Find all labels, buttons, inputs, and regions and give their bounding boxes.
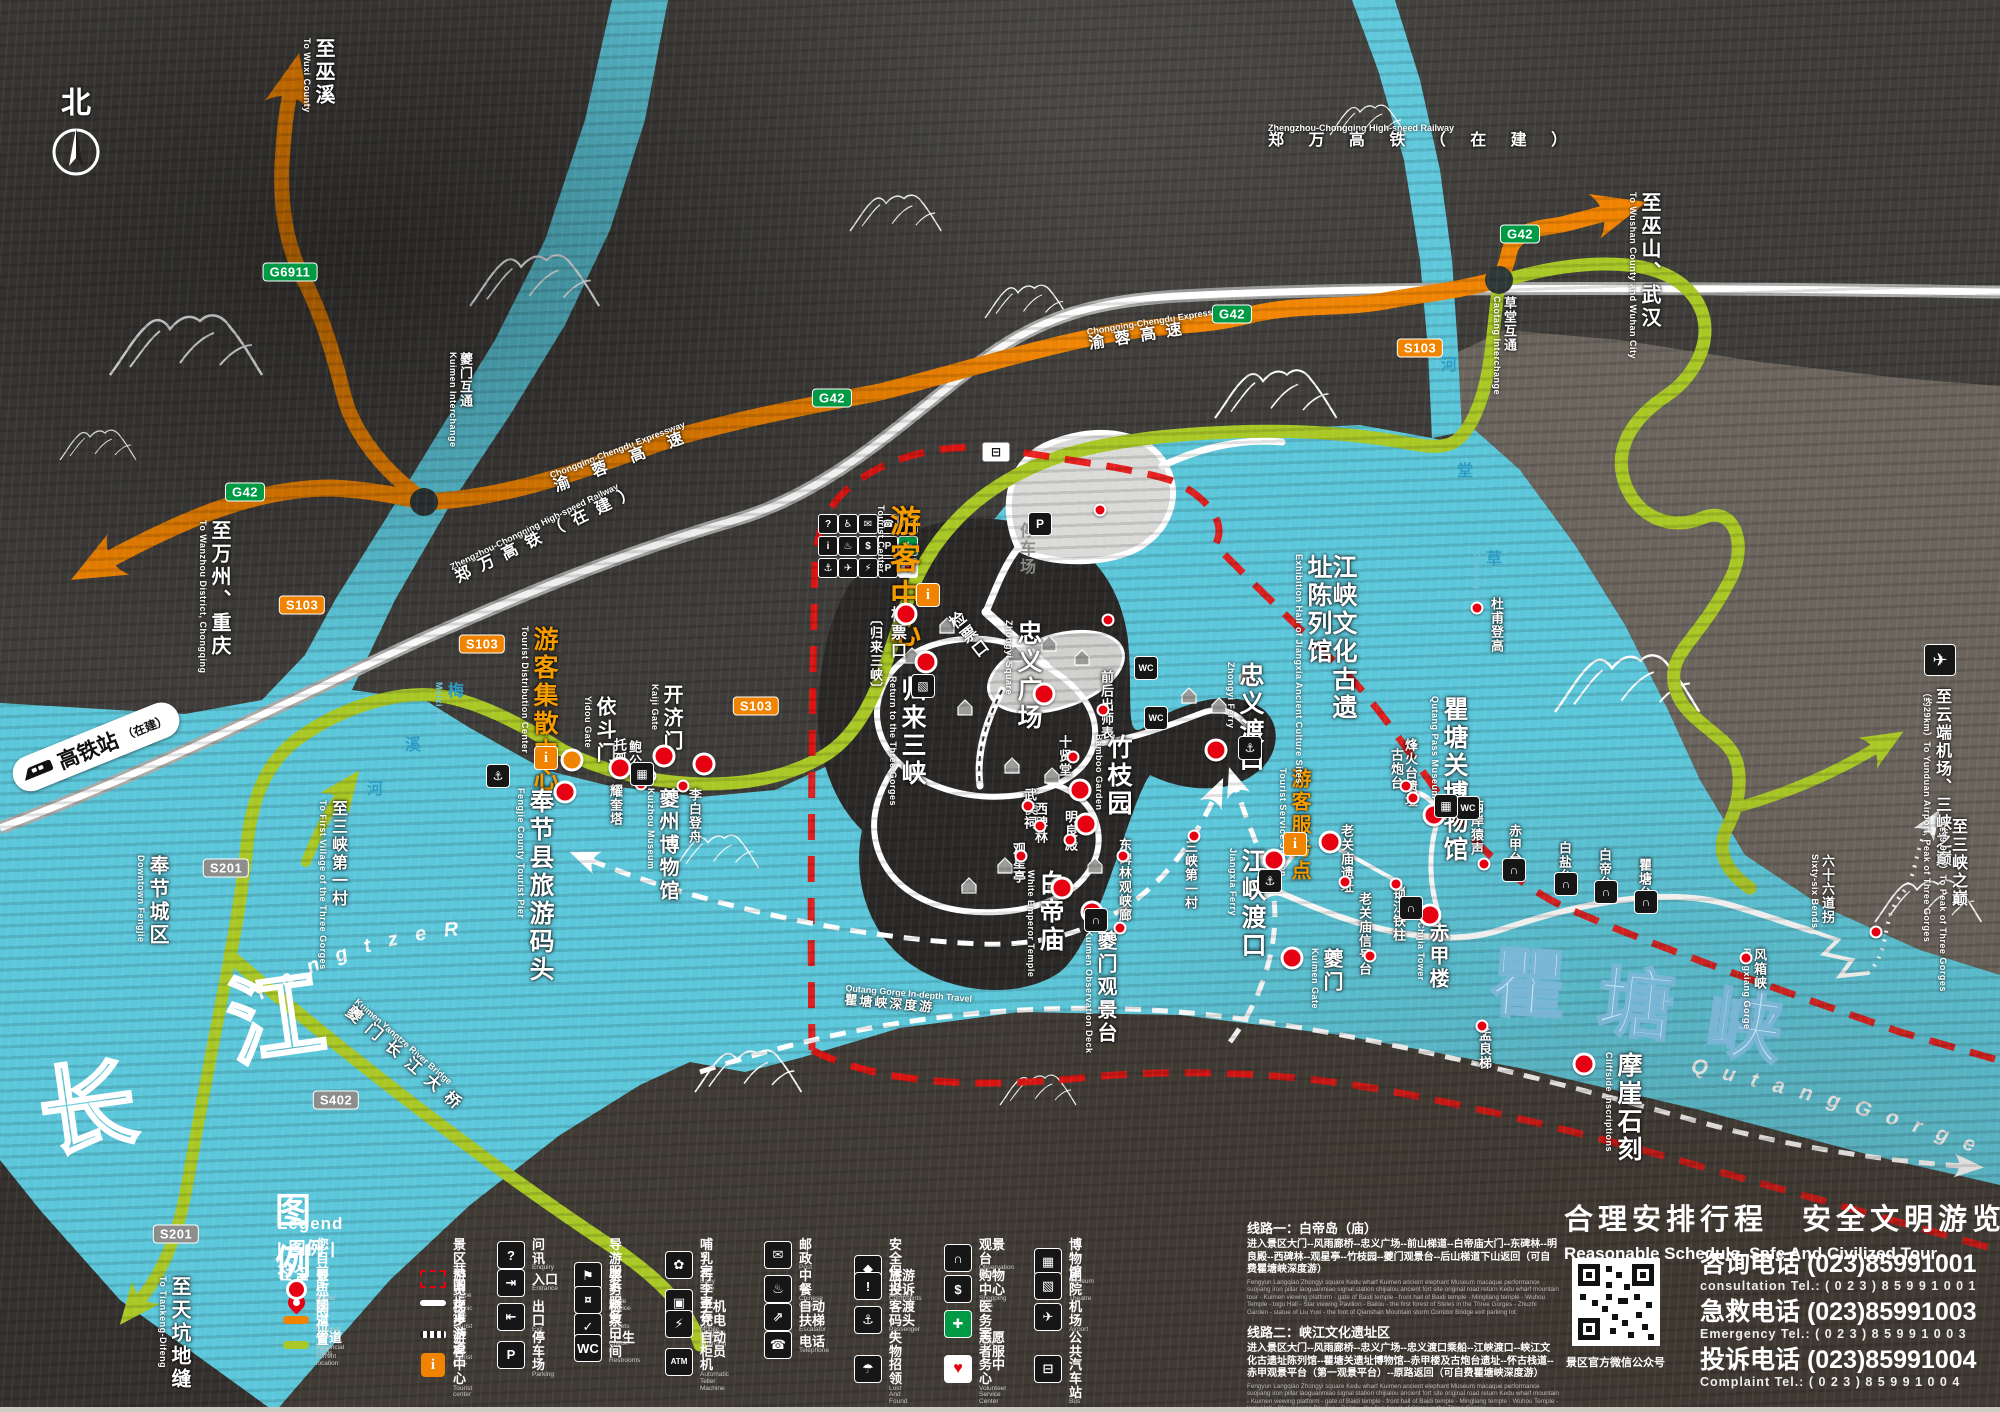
legend-label-en: Lost And Found — [889, 1386, 907, 1406]
map-label: Zhengzhou-Chongqing High-speed Railway郑 … — [1268, 122, 1577, 149]
museum-badge: ▦ — [630, 762, 654, 786]
legend-item: ♥志愿者服务中心Volunteer Service Center — [944, 1331, 1006, 1406]
legend-dot-icon — [283, 1276, 309, 1302]
legend-label-zh: 机场 — [1069, 1300, 1088, 1327]
minor-poi-dot — [1097, 704, 1110, 717]
legend-item: ⇗自动扶梯Escalator — [764, 1300, 826, 1334]
map-label-en: Yidou Gate — [583, 696, 592, 748]
tourist-map: Y a n g t z e R i v e r Q u t a n g G o … — [0, 0, 2000, 1412]
notice-title: 合理安排行程 安全文明游览 — [1564, 1196, 2000, 1238]
road-shield: S402 — [313, 1091, 359, 1110]
map-label-zh: 竹枝园 — [1105, 734, 1130, 818]
scenic-spot-dot — [915, 651, 938, 674]
legend-glyph-icon: ☂ — [854, 1355, 882, 1383]
legend-text: 出口Exit — [532, 1300, 545, 1334]
legend-label-en: Tourist center — [453, 1386, 472, 1400]
map-label-zh: 开济门 — [661, 684, 681, 753]
phone-entry: 急救电话 (023)85991003Emergency Tel.: ( 0 2 … — [1700, 1300, 1977, 1341]
map-label-en: Zhengzhou-Chongqing High-speed Railway — [449, 473, 640, 572]
train-station-badge: 高铁站 （在建） — [7, 697, 185, 797]
legend-label-zh: 剧院 — [1069, 1269, 1091, 1296]
compass: 北 — [48, 78, 104, 183]
legend-label-en: Telephone — [799, 1348, 829, 1355]
map-label: 河 — [1438, 356, 1454, 374]
map-label: 孟良梯 — [1478, 1028, 1491, 1070]
legend-text: 停车场Parking — [532, 1331, 554, 1379]
map-label-zh: 至三峡之巅 — [1949, 818, 1965, 908]
legend-label-zh: 志愿者服务中心 — [979, 1331, 1006, 1386]
map-label: Cliffside Inscriptions摩崖石刻 — [1604, 1052, 1640, 1164]
map-label-zh: 李白登舟 — [688, 788, 701, 844]
map-label: 观峡廊 — [1118, 880, 1131, 922]
map-label-zh: 草 — [1483, 550, 1499, 568]
legend-text: 失物招领Lost And Found — [889, 1331, 907, 1406]
road-shield: S201 — [203, 859, 249, 878]
amenity-icon: ✉ — [858, 514, 878, 534]
info-badge: i — [534, 746, 558, 770]
map-label-en: Return to the Three Gorges — [888, 676, 897, 806]
viewpoint-badge: ∩ — [1502, 858, 1526, 882]
map-label: 河 — [364, 780, 380, 798]
map-label-en: Qutang Pass Museum — [1430, 696, 1439, 799]
legend-item: ☂失物招领Lost And Found — [854, 1331, 907, 1406]
restroom-badge: WC — [1144, 706, 1168, 730]
big-char: 长 — [34, 1056, 142, 1164]
map-label-en: Exhibition Hall of Jiangxia Ancient Cult… — [1294, 554, 1303, 784]
amenity-icon: ♨ — [838, 536, 858, 556]
map-label-zh: 至天坑地缝 — [169, 1276, 189, 1391]
road-shield: G42 — [1500, 225, 1540, 244]
road-shield: S103 — [279, 596, 325, 615]
phone-number: 投诉电话 (023)85991004 — [1700, 1348, 1977, 1373]
scenic-spot-dot — [1051, 877, 1074, 900]
map-label-zh: 摩崖石刻 — [1615, 1052, 1640, 1164]
museum-badge: ▦ — [1434, 794, 1458, 818]
map-label: Qutang Pass Museum瞿塘关博物馆 — [1430, 696, 1466, 864]
map-label-zh: 江峡渡口 — [1239, 848, 1264, 960]
minor-poi-dot — [1064, 834, 1077, 847]
map-label-zh: 瞿塘关博物馆 — [1441, 696, 1466, 864]
scenic-spot-dot — [561, 749, 584, 772]
map-label: 李白登舟 — [688, 788, 701, 844]
map-label: Exhibition Hall of Jiangxia Ancient Cult… — [1294, 554, 1355, 784]
amenity-icon: i — [818, 536, 838, 556]
map-label-zh: 河 — [364, 780, 380, 798]
legend-glyph-icon: P — [497, 1341, 525, 1369]
scenic-spot-dot — [1075, 813, 1098, 836]
viewpoint-badge: ∩ — [1084, 908, 1108, 932]
map-label-en: Jiangxia Ferry — [1228, 848, 1237, 916]
phone-number-en: Emergency Tel.: ( 0 2 3 ) 8 5 9 9 1 0 0 … — [1700, 1327, 1977, 1341]
route-descriptions: 线路一：白帝岛（庙）进入景区大门--风雨廊桥--忠义广场--前山梯道--白帝庙大… — [1247, 1212, 1559, 1412]
legend-label-zh: 客渡码头 — [889, 1300, 920, 1327]
map-label-en: Chijia Tower — [1416, 922, 1425, 981]
big-char: 塘 — [1594, 964, 1678, 1048]
map-label-zh: 观星亭 — [1012, 842, 1025, 884]
pier-badge: ⚓ — [1258, 869, 1282, 893]
legend-glyph-icon: ATM — [665, 1348, 693, 1376]
map-label-zh: 郑万高铁（在建） — [453, 481, 647, 587]
map-label: Kuimen Interchange夔门互通 — [448, 352, 472, 448]
theatre-badge: ▧ — [911, 674, 935, 698]
scenic-spot-dot — [609, 757, 632, 780]
legend-label-en: Automatic Teller Machine — [700, 1372, 729, 1392]
map-label: To Wanzhou District, Chongqing至万州、重庆 — [198, 520, 229, 673]
map-label-zh: 〔归来三峡〕 — [869, 612, 882, 696]
legend-label-zh: 中餐 — [799, 1269, 823, 1296]
legend-label-zh: 卫生间 — [609, 1331, 640, 1358]
legend-text: 公共汽车站Bus — [1069, 1331, 1082, 1406]
viewpoint-badge: ∩ — [1594, 880, 1618, 904]
map-label-zh: 河 — [1438, 356, 1454, 374]
legend-item: ATM自动柜员机Automatic Teller Machine — [665, 1331, 729, 1392]
map-label-zh: 忠义广场 — [1015, 620, 1040, 732]
map-label-zh: 游客服务点 — [1289, 768, 1309, 883]
legend-item: ✉邮政Post — [764, 1238, 812, 1272]
minor-poi-dot — [1476, 1020, 1489, 1033]
amenity-icon: ♿ — [838, 514, 858, 534]
legend-label-en: Parking — [532, 1372, 554, 1379]
map-label-zh: 夔门互通 — [459, 352, 472, 408]
big-char: 瞿 — [1487, 945, 1568, 1026]
minor-poi-dot — [1407, 792, 1420, 805]
legend-label-zh: 入口 — [532, 1273, 558, 1287]
minor-poi-dot — [1478, 858, 1491, 871]
minor-poi-dot — [1870, 926, 1883, 939]
map-label-zh: 郑 万 高 铁 （ 在 建 ） — [1268, 133, 1577, 149]
road-shield: S103 — [1397, 339, 1443, 358]
minor-poi-dot — [1114, 922, 1127, 935]
map-label-en: To Wuxi County — [302, 38, 311, 113]
legend-label-zh: 省道 — [316, 1331, 344, 1345]
map-label: Qutang Gorge In-depth Travel瞿塘峡深度游 — [844, 982, 973, 1017]
map-label: Kuimen Observation Deck夔门观景台 — [1084, 930, 1115, 1054]
map-label: Caotang Interchange草堂互通 — [1492, 296, 1516, 395]
legend-label-zh: 问讯 — [532, 1238, 554, 1265]
scenic-spot-dot — [1033, 683, 1056, 706]
map-label-en: （约9.9km）To Peak of Three Gorges — [1938, 818, 1947, 992]
map-label: Chongqing-Chengdu Expressway渝蓉高速 — [1086, 303, 1232, 352]
map-label-zh: 夔门 — [1321, 948, 1341, 994]
legend-label-zh: 自动扶梯 — [799, 1300, 826, 1327]
phone-entry: 咨询电话 (023)85991001consultation Tel.: ( 0… — [1700, 1252, 1977, 1293]
legend-label-zh: 景点 — [316, 1269, 336, 1296]
legend-glyph-icon: ♥ — [944, 1355, 972, 1383]
info-badge: i — [916, 583, 940, 607]
map-label: （约9.9km）To Peak of Three Gorges至三峡之巅 — [1938, 818, 1965, 992]
map-label-zh: 草堂互通 — [1503, 296, 1516, 352]
bottom-strip — [0, 1407, 2000, 1412]
compass-icon — [48, 122, 104, 178]
legend-label-zh: 手机充电 — [700, 1300, 726, 1327]
train-icon — [19, 758, 56, 784]
map-label-zh: 溪 — [402, 736, 418, 754]
map-label: 溪 — [402, 736, 418, 754]
map-label: 三峡第一村 — [1184, 840, 1197, 910]
legend-item: ⇤出口Exit — [497, 1300, 545, 1334]
scenic-spot-dot — [653, 745, 676, 768]
minor-poi-dot — [1471, 602, 1484, 615]
minor-poi-dot — [1740, 952, 1753, 965]
legend-glyph-icon: ? — [497, 1241, 525, 1269]
legend-text: 电话Telephone — [799, 1335, 829, 1355]
minor-poi-dot — [1102, 614, 1115, 627]
road-shield: G42 — [812, 389, 852, 408]
road-shield: S103 — [459, 635, 505, 654]
legend-label-zh: 电话 — [799, 1335, 829, 1349]
legend-label-zh: 公共汽车站 — [1069, 1331, 1082, 1399]
legend-provincial-road-icon — [283, 1332, 309, 1358]
legend-glyph-icon: ✉ — [764, 1241, 792, 1269]
info-badge: i — [1283, 832, 1307, 856]
legend-text: 志愿者服务中心Volunteer Service Center — [979, 1331, 1006, 1406]
road-shield: G42 — [225, 483, 265, 502]
bus-stop-badge: ⊟ — [982, 442, 1010, 462]
map-label-zh: 至万州、重庆 — [209, 520, 229, 658]
restroom-badge: WC — [1456, 796, 1480, 820]
amenity-icon: ⚡ — [858, 558, 878, 578]
map-label: To First Village of the Three Gorges至三峡第… — [318, 800, 345, 970]
route-line: Fengyun Langqiao Zhongyi square Kedu wha… — [1247, 1279, 1559, 1317]
amenity-icon: ✈ — [838, 558, 858, 578]
map-label: Kuizhou Museum夔州博物馆 — [646, 788, 677, 903]
legend-label-zh: 出口 — [532, 1300, 545, 1327]
station-status: （在建） — [119, 710, 170, 744]
map-label: Zhengzhou-Chongqing High-speed Railway郑万… — [448, 471, 647, 586]
legend-label-zh: 邮政 — [799, 1238, 812, 1265]
minor-poi-dot — [1390, 878, 1403, 891]
map-label-zh: 夔州博物馆 — [657, 788, 677, 903]
minor-poi-dot — [1067, 751, 1080, 764]
minor-poi-dot — [1034, 820, 1047, 833]
legend-glyph-icon: ⇤ — [497, 1303, 525, 1331]
legend-item: !旅游投诉Complaints — [854, 1269, 922, 1303]
map-label-en: White Emperor Temple — [1026, 870, 1035, 977]
legend-text: 问讯Enquiry — [532, 1238, 554, 1272]
route-line: 线路一：白帝岛（庙） — [1247, 1218, 1559, 1237]
legend-label-zh: 游客中心 — [453, 1331, 472, 1386]
legend-label-zh: 国道 — [316, 1300, 340, 1327]
scenic-spot-dot — [1069, 779, 1092, 802]
minor-poi-dot — [1015, 850, 1028, 863]
legend-text: 邮政Post — [799, 1238, 812, 1272]
phone-number: 急救电话 (023)85991003 — [1700, 1300, 1977, 1325]
map-label: Kuimen Yangtze River Bridge夔门长江大桥 — [342, 996, 477, 1119]
phone-numbers: 咨询电话 (023)85991001consultation Tel.: ( 0… — [1700, 1252, 1977, 1396]
map-label: 耀奎塔 — [609, 784, 622, 826]
map-label-en: To Wushan County and Wuhan City — [1628, 192, 1637, 359]
minor-poi-dot — [677, 780, 690, 793]
map-label-zh: 依斗门 — [594, 696, 614, 765]
legend-item: ✈机场Airport — [1034, 1300, 1088, 1334]
map-label-zh: 梅 — [445, 682, 461, 700]
scenic-spot-dot — [693, 753, 716, 776]
map-label: To Tiankeng-Difeng至天坑地缝 — [158, 1276, 189, 1391]
restroom-badge: WC — [1134, 656, 1158, 680]
airport-badge: ✈ — [1924, 644, 1956, 676]
map-label-zh: 至三峡第一村 — [329, 800, 345, 908]
phone-number: 咨询电话 (023)85991001 — [1700, 1252, 1977, 1277]
minor-poi-dot — [1339, 876, 1352, 889]
map-label-en: Kaiji Gate — [650, 684, 659, 731]
minor-poi-dot — [1400, 780, 1413, 793]
legend-label-en: Entrance — [532, 1286, 558, 1293]
legend-text: 旅游投诉Complaints — [889, 1269, 922, 1303]
map-label: 观星亭 — [1012, 842, 1025, 884]
legend-item: ▧剧院Theatre — [1034, 1269, 1091, 1303]
phone-entry: 投诉电话 (023)85991004Complaint Tel.: ( 0 2 … — [1700, 1348, 1977, 1389]
map-label-en: Kuimen Observation Deck — [1084, 930, 1093, 1054]
phone-number-en: Complaint Tel.: ( 0 2 3 ) 8 5 9 9 1 0 0 … — [1700, 1375, 1977, 1389]
qr-block: 景区官方微信公众号 — [1566, 1258, 1665, 1370]
map-label-en: （约29km）To Yunduan Airport, Peak of Three… — [1922, 688, 1931, 942]
legend-item: i游客中心Tourist center — [420, 1331, 472, 1399]
map-label-zh: 赤甲楼 — [1427, 922, 1447, 991]
minor-poi-dot — [1022, 800, 1035, 813]
map-label-zh: 三峡第一村 — [1184, 840, 1197, 910]
map-label: Bamboo Garden竹枝园 — [1094, 734, 1130, 818]
legend-text: 自动柜员机Automatic Teller Machine — [700, 1331, 729, 1392]
map-label: Meixi River梅 — [434, 682, 461, 735]
map-label-zh: 夔门观景台 — [1095, 930, 1115, 1045]
qr-code — [1572, 1258, 1660, 1346]
legend-glyph-icon: ⇗ — [764, 1303, 792, 1331]
map-label: Jiangxia Ferry江峡渡口 — [1228, 848, 1264, 960]
map-label-en: Kuimen Yangtze River Bridge — [353, 998, 477, 1107]
map-label-zh: 至巫溪 — [313, 38, 333, 107]
pier-badge: ⚓ — [486, 764, 510, 788]
scenic-spot-dot — [1573, 1053, 1596, 1076]
map-label-en: Meixi River — [434, 682, 443, 735]
map-label: 堂 — [1454, 462, 1470, 480]
map-label: Downtown Fengjie奉节城区 — [136, 855, 167, 947]
legend-item: ?问讯Enquiry — [497, 1238, 554, 1272]
amenity-icon: ⚓ — [818, 558, 838, 578]
scenic-spot-dot — [1319, 831, 1342, 854]
map-overlay: 北 高铁站 （在建） ?♿✉☎WCi♨$P✚⚓✈⚡P♥ 图例 Legend | … — [0, 0, 2000, 1412]
map-label-en: Sixty-six Bends — [1810, 854, 1819, 929]
map-label-zh: 孟良梯 — [1478, 1028, 1491, 1070]
route-line: 进入景区大门--风雨廊桥--忠义广场--忠义渡口乘船--江峡渡口--峡江文化古遗… — [1247, 1343, 1559, 1381]
map-label-en: Tourist Distribution Center — [520, 626, 529, 753]
legend-national-road-icon — [283, 1307, 309, 1333]
map-label-en: Caotang Interchange — [1492, 296, 1501, 395]
qr-caption: 景区官方微信公众号 — [1566, 1354, 1665, 1370]
legend-item: ☎电话Telephone — [764, 1331, 829, 1359]
legend-glyph-icon: WC — [574, 1334, 602, 1362]
map-label: To Wushan County and Wuhan City至巫山、武汉 — [1628, 192, 1659, 359]
route-line: 线路二：峡江文化遗址区 — [1247, 1322, 1559, 1341]
map-label: Yidou Gate依斗门 — [583, 696, 614, 765]
map-label: Chijia Tower赤甲楼 — [1416, 922, 1447, 991]
scenic-spot-dot — [1205, 739, 1228, 762]
map-label-en: Zhongyi Square — [1004, 620, 1013, 695]
amenity-icon: $ — [858, 536, 878, 556]
pier-badge: ⚓ — [1238, 736, 1262, 760]
map-label-en: To Wanzhou District, Chongqing — [198, 520, 207, 673]
legend-label-en: Restrooms — [609, 1358, 640, 1365]
map-label-zh: 老关庙信号台 — [1358, 892, 1371, 976]
map-label: Kaiji Gate开济门 — [650, 684, 681, 753]
scenic-spot-dot — [895, 603, 918, 626]
map-label: Sixty-six Bends六十六道拐 — [1810, 854, 1834, 929]
legend-info-icon: i — [420, 1352, 446, 1378]
map-label-en: To Tiankeng-Difeng — [158, 1276, 167, 1368]
road-shield: G6911 — [263, 263, 318, 282]
map-label-zh: 奉节城区 — [147, 855, 167, 947]
map-label: 〔归来三峡〕 — [869, 612, 882, 696]
map-label-zh: 六十六道拐 — [1821, 854, 1834, 924]
legend-glyph-icon: ⊟ — [1034, 1355, 1062, 1383]
legend-label-zh: 失物招领 — [889, 1331, 907, 1386]
viewpoint-badge: ∩ — [1634, 890, 1658, 914]
map-label-en: Downtown Fengjie — [136, 855, 145, 943]
map-label-zh: 江峡文化古遗 址陈列馆 — [1305, 554, 1355, 722]
legend-label-zh: 旅游投诉 — [889, 1269, 922, 1296]
legend-label-en: Volunteer Service Center — [979, 1386, 1006, 1406]
road-shield: S103 — [733, 697, 779, 716]
map-label-en: To First Village of the Three Gorges — [318, 800, 327, 970]
minor-poi-dot — [1188, 830, 1201, 843]
legend-glyph-icon: ⇥ — [497, 1269, 525, 1297]
map-label-en: Tourist Center — [876, 505, 885, 573]
legend-label-zh: 观景台 — [979, 1238, 1014, 1265]
map-label-en: Kuizhou Museum — [646, 788, 655, 870]
legend-label-en: Bus — [1069, 1399, 1082, 1406]
legend-text: 省道Provincial roads — [316, 1331, 344, 1358]
minor-poi-dot — [1094, 504, 1107, 517]
viewpoint-badge: ∩ — [1399, 896, 1423, 920]
legend-label-zh: 自动柜员机 — [700, 1331, 729, 1372]
map-label: 老关庙信号台 — [1358, 892, 1371, 976]
map-label-en: Kuimen Interchange — [448, 352, 457, 448]
station-name: 高铁站 — [53, 725, 123, 776]
minor-poi-dot — [1117, 850, 1130, 863]
legend-text: 剧院Theatre — [1069, 1269, 1091, 1303]
map-label-en: Kuimen Gate — [1310, 948, 1319, 1009]
legend-glyph-icon: ✈ — [1034, 1303, 1062, 1331]
legend-glyph-icon: ▧ — [1034, 1272, 1062, 1300]
legend-glyph-icon: ! — [854, 1272, 882, 1300]
map-label: Kuimen Gate夔门 — [1310, 948, 1341, 1009]
map-label-en: Cliffside Inscriptions — [1604, 1052, 1613, 1152]
legend-glyph-icon: ☎ — [764, 1331, 792, 1359]
map-label-zh: 堂 — [1454, 462, 1470, 480]
map-label-en: Zhongyi Ferry — [1226, 662, 1235, 729]
map-label: Zhongyi Square忠义广场 — [1004, 620, 1040, 732]
phone-number-en: consultation Tel.: ( 0 2 3 ) 8 5 9 9 1 0… — [1700, 1279, 1977, 1293]
legend-text: 机场Airport — [1069, 1300, 1088, 1334]
big-char: 江 — [222, 966, 330, 1074]
parking-badge: P — [1028, 512, 1052, 536]
legend-item: P停车场Parking — [497, 1331, 554, 1379]
map-label-en: Fengjie County Tourist Pier — [516, 788, 525, 918]
legend-item: ⊟公共汽车站Bus — [1034, 1331, 1082, 1406]
route-line: 进入景区大门--风雨廊桥--忠义广场--前山梯道--白帝庙大门--东碑林--明良… — [1247, 1239, 1559, 1277]
legend-label-zh: 停车场 — [532, 1331, 554, 1372]
legend-item: WC卫生间Restrooms — [574, 1331, 640, 1365]
map-label-zh: 观峡廊 — [1118, 880, 1131, 922]
map-label: Fengjie County Tourist Pier奉节县旅游码头 — [516, 788, 552, 984]
legend-label-en: Provincial roads — [316, 1345, 344, 1359]
map-label-zh: 检票口 — [944, 610, 990, 662]
map-label-zh: 夔门长江大桥 — [342, 1004, 470, 1118]
map-label-zh: 奉节县旅游码头 — [527, 788, 552, 984]
map-label-zh: 至巫山、武汉 — [1639, 192, 1659, 330]
legend-text: 游客中心Tourist center — [453, 1331, 472, 1399]
map-label-en: Bamboo Garden — [1094, 734, 1103, 811]
map-label: 检票口 — [944, 610, 990, 662]
